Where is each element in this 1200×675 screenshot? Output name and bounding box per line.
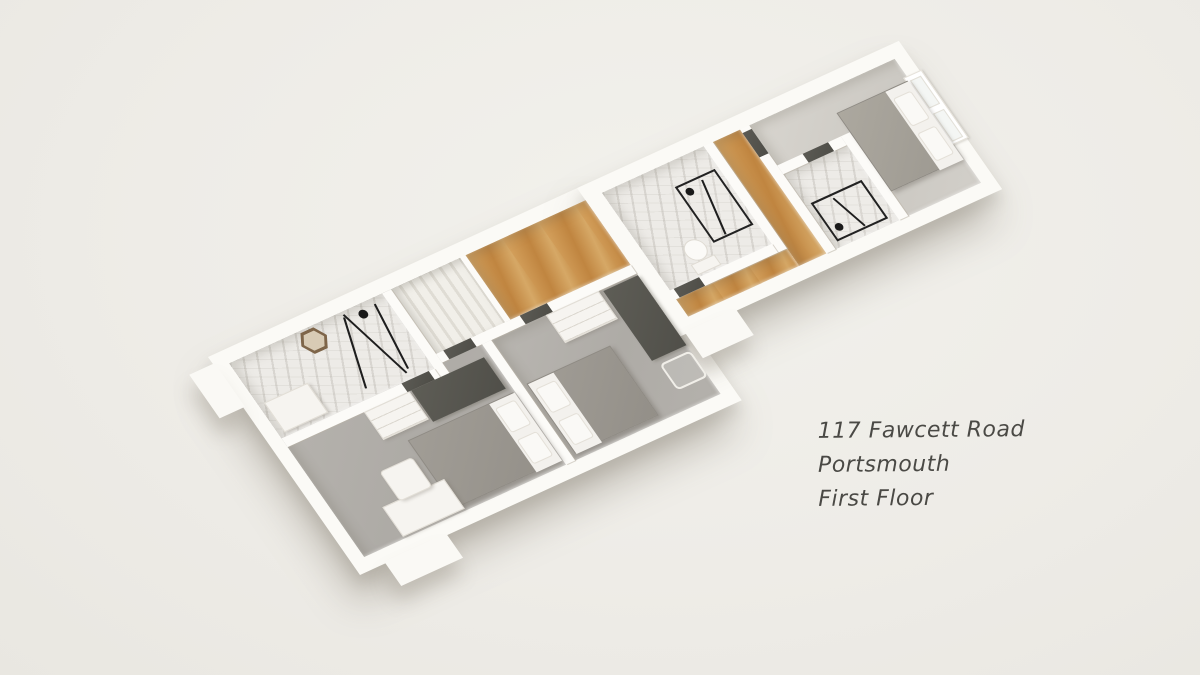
floorplan-render-canvas: 117 Fawcett Road Portsmouth First Floor	[0, 0, 1200, 675]
shower-head-2	[684, 187, 696, 197]
address-caption: 117 Fawcett Road Portsmouth First Floor	[818, 413, 1026, 517]
address-line-2: Portsmouth	[818, 447, 1025, 483]
shower-head-1	[357, 308, 371, 320]
address-line-1: 117 Fawcett Road	[818, 413, 1025, 449]
shower-head-3	[833, 222, 845, 232]
floor-label-line: First Floor	[818, 481, 1025, 517]
